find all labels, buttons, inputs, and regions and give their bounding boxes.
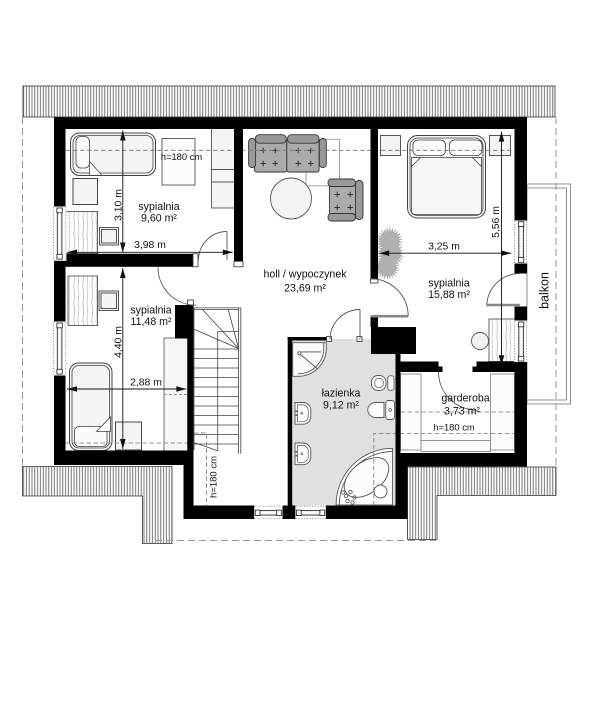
- svg-text:11,48 m²: 11,48 m²: [130, 316, 171, 328]
- svg-text:9,12 m²: 9,12 m²: [323, 400, 359, 412]
- svg-text:sypialnia: sypialnia: [428, 278, 469, 290]
- svg-text:3,10 m: 3,10 m: [113, 189, 124, 221]
- svg-text:3,25 m: 3,25 m: [428, 242, 460, 253]
- svg-text:5,56 m: 5,56 m: [491, 206, 502, 238]
- svg-text:balkon: balkon: [538, 272, 552, 309]
- svg-text:sypialnia: sypialnia: [130, 305, 171, 317]
- svg-text:9,60 m²: 9,60 m²: [141, 213, 177, 225]
- svg-text:3,98 m: 3,98 m: [134, 240, 166, 251]
- svg-text:4,40 m: 4,40 m: [113, 326, 124, 358]
- svg-text:2,88 m: 2,88 m: [130, 377, 162, 388]
- svg-text:sypialnia: sypialnia: [138, 201, 179, 213]
- svg-text:h=180 cm: h=180 cm: [433, 422, 475, 433]
- svg-text:holl / wypoczynek: holl / wypoczynek: [263, 269, 347, 281]
- svg-text:garderoba: garderoba: [441, 393, 489, 405]
- svg-text:3,73 m²: 3,73 m²: [444, 406, 480, 418]
- svg-text:łazienka: łazienka: [322, 388, 361, 400]
- svg-text:23,69 m²: 23,69 m²: [284, 283, 326, 295]
- svg-text:15,88 m²: 15,88 m²: [428, 289, 470, 301]
- svg-text:h=180 cm: h=180 cm: [209, 456, 220, 498]
- svg-text:h=180 cm: h=180 cm: [161, 151, 203, 162]
